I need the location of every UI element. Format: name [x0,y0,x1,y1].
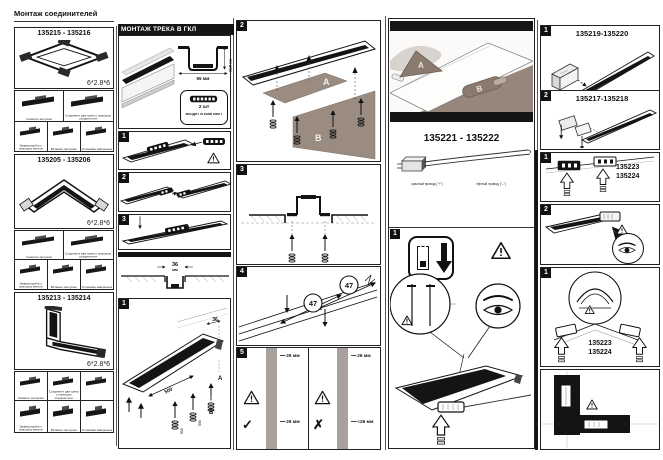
mini-drawing [83,124,111,142]
mini-caption: Установка завершена [82,286,113,289]
mini-drawing [83,262,111,280]
mini-step-panel: Соедините два трека с помощью соединител… [47,371,81,401]
power-feed-diagram [542,104,658,148]
mini-caption: Зафиксируйте с помощью винтов [16,145,47,151]
mini-caption: Установка завершена [82,148,113,151]
adapter-code-1: 135223 [616,163,660,172]
mini-drawing [50,262,78,280]
mini-caption: Установка завершена [82,429,113,432]
photo-bottom-bar [390,112,533,122]
connector-section-2: 135205 - 135206 6*2.8*6 [14,154,114,229]
mini-drawing [50,374,78,391]
mini-step-panel [80,371,114,401]
section3-spec: 6*2.8*6 [87,361,110,368]
mini-step-panel: Снимите заглушки [14,90,64,122]
dim-label: 26 мм [280,420,300,425]
mini-drawing [83,403,111,423]
mini-step-panel: Зафиксируйте с помощью винтов [14,121,48,152]
corner-code-2: 135224 [572,348,628,357]
check-icon: ✓ [242,418,253,431]
mini-step-panel: Вставьте заглушки [47,400,81,433]
mini-step-panel: Вставьте заглушки [47,259,81,290]
install-spacing-side: 500 [180,428,184,434]
corner-code-1: 135223 [572,339,628,348]
edge-distance-bar-bad [337,348,348,449]
divider-col1 [116,26,117,446]
panel-b-label: B [315,133,322,143]
profile-width-label: 65 мм [184,77,222,82]
warning-triangle-icon [490,241,512,260]
mini-caption: Соедините два трека с помощью соединител… [49,390,80,400]
mini-caption: Вставьте заглушки [49,286,80,289]
install-label-b: B [209,410,214,416]
section-divider-bar [118,252,231,257]
install-spacing-label: 500 [164,387,174,396]
mini-drawing [50,124,78,142]
power-code: 135221 - 135222 [392,133,531,144]
kit-note: ВХОДИТ В КОМПЛЕКТ [178,113,230,116]
profile-cross-section [178,40,228,76]
gkl-step3-diagram [119,215,231,249]
insert-track-diagram [390,352,533,448]
l-connector-diagram [16,168,112,220]
mini-caption: Вставьте заглушки [49,429,80,432]
cross-icon: ✗ [313,418,324,431]
section1-code: 135215 - 135216 [15,30,113,37]
mini-drawing [50,403,78,423]
slot-width-unit: мм [172,268,178,272]
install-3d-diagram: 36 500 500 500 A B [119,300,231,448]
step-badge: 3 [237,165,247,175]
step-badge: 2 [119,173,129,183]
vertical-corner-diagram [16,306,112,362]
arrow-up-icon [596,168,610,194]
eye-icon [616,240,638,256]
dim-label: 26 мм [351,354,371,359]
endcap-code: 135219-135220 [552,29,652,38]
power-connector-diagram [392,147,533,181]
mini-drawing [17,374,45,391]
mini-step-panel: Зафиксируйте с помощью винтов [14,400,48,433]
warning-triangle-icon [243,390,260,405]
divider-col2 [233,18,234,450]
kit-box: 2 шт ВХОДИТ В КОМПЛЕКТ [180,90,228,125]
step-badge: 2 [541,91,551,101]
mini-step-panel: Снимите заглушки [14,230,64,260]
step5-divider [308,348,309,449]
step-badge: 5 [237,348,247,358]
track-mount-header: МОНТАЖ ТРЕКА В ГКЛ [118,24,234,35]
mini-caption: Зафиксируйте с помощью винтов [16,426,47,432]
page-title: Монтаж соединителей [14,9,124,18]
divider-col4-thick [535,150,538,450]
col4-divider [388,227,535,228]
mini-step-panel: Установка завершена [80,400,114,433]
wire-black-label: чёрный провод ("–") [473,183,509,186]
screw-spacing-label: 47 [345,281,353,290]
mini-step-panel: Снимите заглушки [14,371,48,401]
tool-a-label: A [418,61,424,70]
mini-drawing [83,374,111,391]
step-badge: 1 [541,153,551,163]
arrow-up-icon [554,337,569,364]
photo-top-bar [390,21,533,31]
mini-drawing [17,233,61,250]
perforated-strip-icon [188,95,219,103]
edge-distance-bar-ok [266,348,277,449]
mini-drawing [66,233,111,250]
mini-drawing [66,93,111,112]
ceiling-step4-diagram: 47 47 [237,267,380,345]
install-spacing-side: 500 [198,420,202,426]
mini-drawing [17,93,61,112]
step-badge: 4 [237,267,247,277]
profile-height-label: 31.5 мм [229,59,233,72]
mini-step-panel: Установка завершена [80,121,114,152]
mini-drawing [17,403,45,423]
section3-code: 135213 - 135214 [15,295,113,302]
mini-step-panel: Соедините два трека с помощью соединител… [63,230,114,260]
slot-cross-section: 36 мм [119,259,231,296]
step-badge: 1 [119,299,129,309]
section2-spec: 6*2.8*6 [87,220,110,227]
step-badge: 1 [390,229,400,239]
connector-section-3: 135213 - 135214 6*2.8*6 [14,292,114,370]
step-badge: 2 [541,205,551,215]
mini-step-panel: Соедините два трека с помощью соединител… [63,90,114,122]
corner-topview-diagram [542,371,658,448]
section2-code: 135205 - 135206 [15,157,113,164]
mini-caption: Вставьте заглушки [49,148,80,151]
adapter-code-2: 135224 [616,172,660,181]
visual-check-circle [612,233,644,264]
warning-triangle-icon [586,399,598,410]
install-label-a: A [218,376,223,382]
gkl-step2-diagram [119,173,231,211]
screw-spacing-label: 47 [309,299,317,308]
dim-label: 26 мм [280,354,300,359]
warning-triangle-icon [314,390,331,405]
step-badge: 1 [119,132,129,142]
mini-step-panel: Вставьте заглушки [47,121,81,152]
step-badge: 1 [541,26,551,36]
mini-caption: Зафиксируйте с помощью винтов [16,283,47,289]
panel-a-label: A [323,77,330,87]
section1-spec: 6*2.8*6 [87,80,110,87]
step-badge: 2 [237,21,247,31]
instruction-sheet: Монтаж соединителей 135215 - 135216 6*2.… [0,0,663,460]
step-badge: 1 [541,268,551,278]
mini-step-panel: Установка завершена [80,259,114,290]
power-feed-code: 135217-135218 [552,94,652,103]
mini-drawing [17,124,45,142]
divider-col3 [385,16,386,450]
ceiling-step3-diagram [237,165,380,264]
dim-label: <26 мм [351,420,373,425]
kit-qty: 2 шт [186,105,223,110]
warning-triangle-icon [207,152,220,164]
connector-section-1: 135215 - 135216 6*2.8*6 [14,27,114,89]
ceiling-step2-diagram: A B [237,21,380,161]
check-detail-diagram [390,260,533,360]
arrow-up-icon [632,337,647,364]
arrow-up-icon [560,172,574,198]
finishing-illustration: A B [390,31,533,112]
cross-connector-diagram [16,40,112,82]
wire-red-label: красный провод ("+") [409,183,445,186]
drywall-3d-diagram [120,38,176,126]
mini-step-panel: Зафиксируйте с помощью винтов [14,259,48,290]
step-badge: 3 [119,215,129,225]
arrow-up-icon [432,414,450,447]
title-rule [14,21,114,22]
mini-drawing [17,262,45,280]
